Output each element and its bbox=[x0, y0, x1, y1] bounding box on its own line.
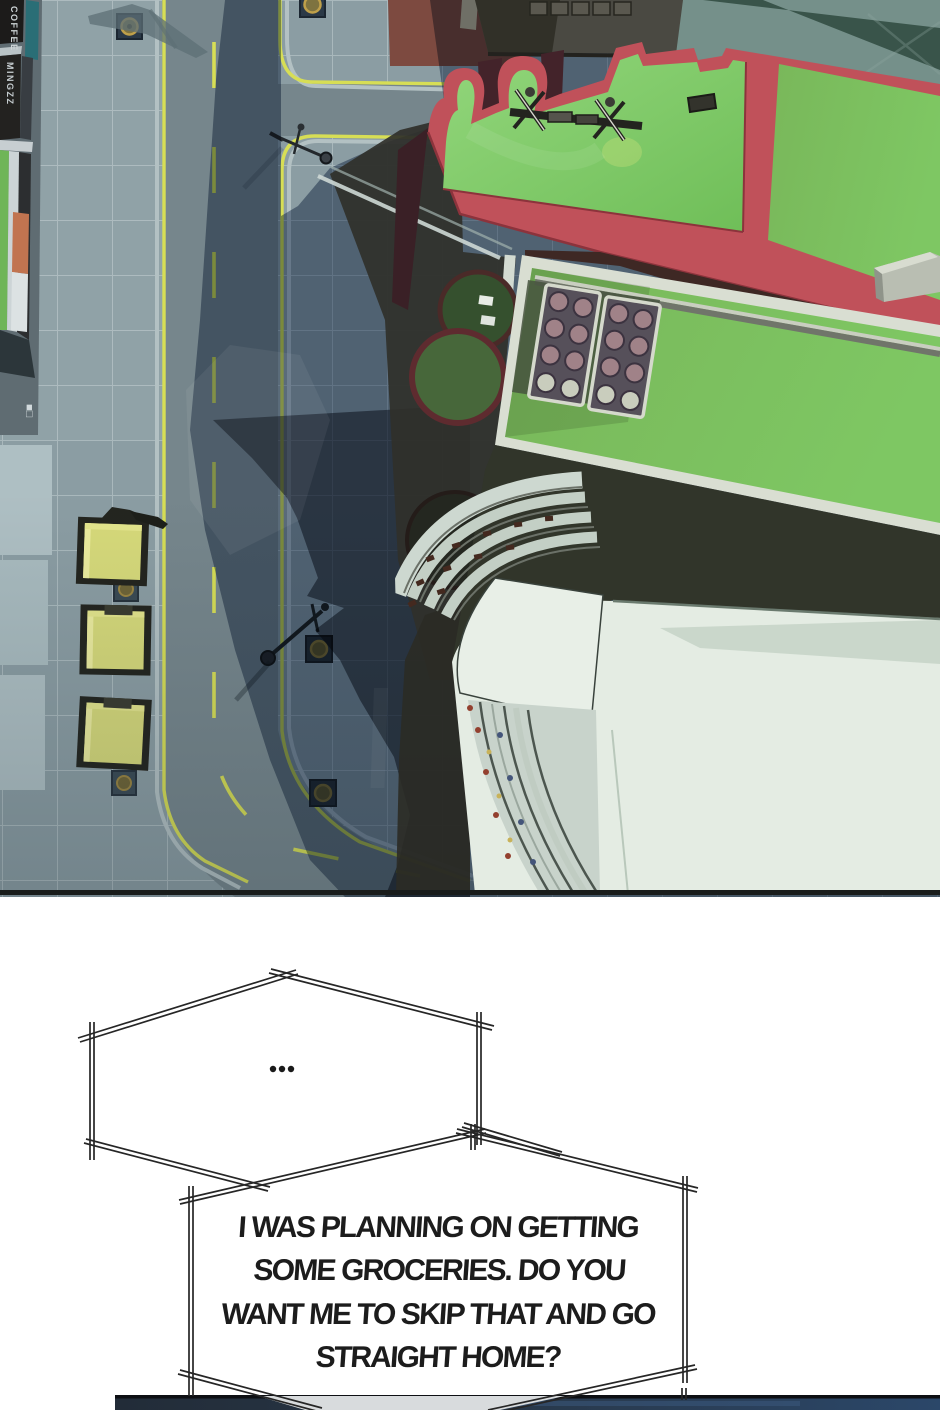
svg-text:STRAIGHT HOME?: STRAIGHT HOME? bbox=[315, 1341, 562, 1374]
svg-text:I WAS PLANNING ON GETTING: I WAS PLANNING ON GETTING bbox=[237, 1211, 639, 1244]
svg-text:WANT ME TO SKIP THAT AND GO: WANT ME TO SKIP THAT AND GO bbox=[220, 1298, 657, 1331]
svg-text:SOME GROCERIES. DO YOU: SOME GROCERIES. DO YOU bbox=[252, 1254, 626, 1287]
